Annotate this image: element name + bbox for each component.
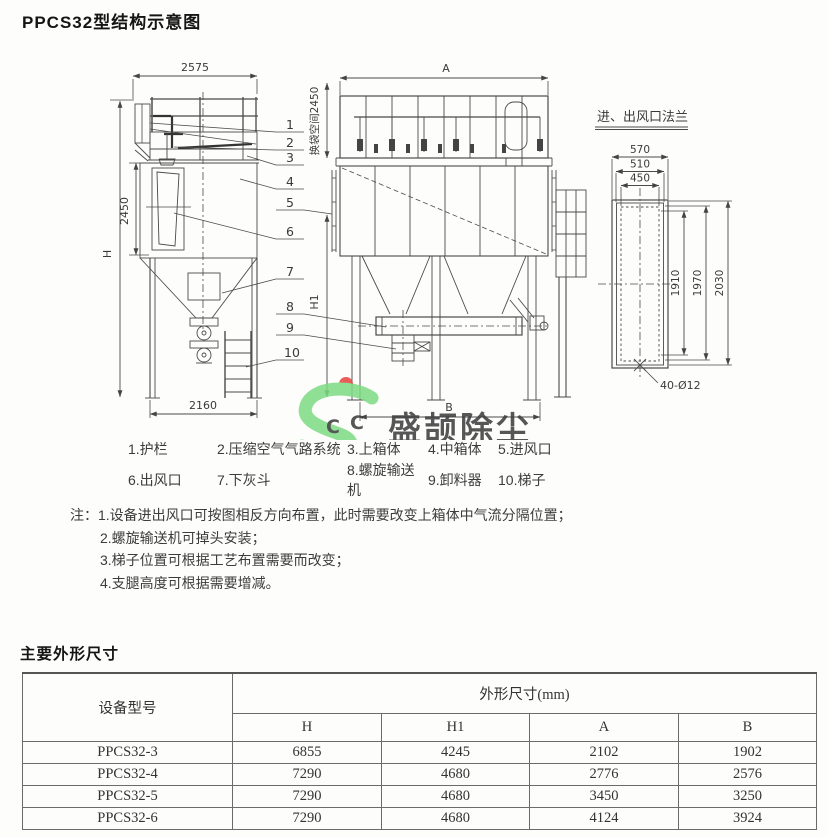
parts-legend: 1.护栏 2.压缩空气气路系统 3.上箱体 4.中箱体 5.进风口 6.出风口 … [128, 438, 688, 482]
leader-labels: 1 2 3 4 5 6 7 8 9 10 [150, 117, 396, 367]
model-cell: PPCS32-3 [23, 741, 233, 763]
table-row: PPCS32-4 7290 4680 2776 2576 [23, 763, 817, 785]
catalog-page: PPCS32型结构示意图 2575 H 2450 [0, 0, 828, 837]
dim-A: A [442, 62, 450, 75]
col-group-header: 外形尺寸(mm) [233, 673, 817, 713]
dim-2030: 2030 [714, 270, 726, 297]
legend-item: 4.中箱体 [428, 439, 498, 459]
dim-1910: 1910 [670, 270, 682, 297]
note-line: 2.螺旋输送机可掉头安装； [100, 527, 760, 550]
dimensions-table: 设备型号 外形尺寸(mm) H H1 A B PPCS32-3 6855 424… [22, 672, 817, 830]
col-header-H1: H1 [382, 713, 530, 741]
legend-item: 10.梯子 [498, 470, 688, 490]
legend-item: 2.压缩空气气路系统 [217, 439, 347, 459]
dim-1970: 1970 [692, 270, 704, 297]
legend-item: 8.螺旋输送机 [347, 460, 428, 500]
leader-6: 6 [286, 224, 294, 239]
notes-block: 注：1.设备进出风口可按图相反方向布置，此时需要改变上箱体中气流分隔位置； 2.… [70, 504, 760, 594]
legend-item: 5.进风口 [498, 439, 688, 459]
legend-item: 3.上箱体 [347, 439, 428, 459]
leader-7: 7 [286, 264, 294, 279]
dim-570: 570 [630, 144, 650, 156]
leader-4: 4 [286, 174, 294, 189]
leader-10: 10 [284, 345, 300, 360]
dim-2450: 2450 [118, 197, 131, 225]
legend-item: 9.卸料器 [428, 470, 498, 490]
model-cell: PPCS32-6 [23, 807, 233, 829]
table-row: PPCS32-5 7290 4680 3450 3250 [23, 785, 817, 807]
col-header-H: H [233, 713, 382, 741]
legend-item: 7.下灰斗 [217, 470, 347, 490]
leader-3: 3 [286, 150, 294, 165]
note-line: 4.支腿高度可根据需要增减。 [100, 572, 760, 595]
dim-510: 510 [630, 159, 650, 171]
watermark-text: 盛颉除尘 [388, 409, 532, 440]
table-row: PPCS32-3 6855 4245 2102 1902 [23, 741, 817, 763]
legend-item: 1.护栏 [128, 439, 217, 459]
model-cell: PPCS32-5 [23, 785, 233, 807]
structure-diagram: 2575 H 2450 [0, 0, 828, 440]
table-row: PPCS32-6 7290 4680 4124 3924 [23, 807, 817, 829]
section-heading: 主要外形尺寸 [20, 642, 119, 664]
dim-bolt-holes: 40-Ø12 [660, 379, 701, 392]
flange-detail-drawing: 进、出风口法兰 570 510 450 1910 1970 [595, 110, 732, 392]
note-line: 注：1.设备进出风口可按图相反方向布置，此时需要改变上箱体中气流分隔位置； [70, 504, 760, 527]
note-line: 3.梯子位置可根据工艺布置需要而改变； [100, 549, 760, 572]
front-view-drawing: A 换袋空间2450 [308, 62, 586, 421]
col-header-model: 设备型号 [23, 673, 233, 741]
col-header-B: B [679, 713, 817, 741]
dim-bag-space: 换袋空间2450 [308, 87, 321, 156]
legend-row-2: 6.出风口 7.下灰斗 8.螺旋输送机 9.卸料器 10.梯子 [128, 460, 688, 482]
leader-5: 5 [286, 195, 294, 210]
dim-2575: 2575 [181, 61, 209, 74]
watermark-letter-c1: C [326, 416, 340, 438]
dim-H1: H1 [308, 294, 321, 309]
legend-item: 6.出风口 [128, 470, 217, 490]
flange-title: 进、出风口法兰 [597, 110, 688, 125]
dim-450: 450 [630, 173, 650, 185]
dim-H: H [101, 250, 114, 258]
legend-row-1: 1.护栏 2.压缩空气气路系统 3.上箱体 4.中箱体 5.进风口 [128, 438, 688, 460]
leader-9: 9 [286, 320, 294, 335]
watermark-letter-c2: C [350, 412, 364, 434]
dim-2160: 2160 [189, 399, 217, 412]
leader-2: 2 [286, 135, 294, 150]
leader-1: 1 [286, 117, 294, 132]
leader-8: 8 [286, 299, 294, 314]
col-header-A: A [530, 713, 679, 741]
side-view-drawing: 2575 H 2450 [101, 61, 262, 418]
note-prefix: 注： [70, 507, 98, 523]
watermark: C C 盛颉除尘 [302, 377, 532, 440]
model-cell: PPCS32-4 [23, 763, 233, 785]
